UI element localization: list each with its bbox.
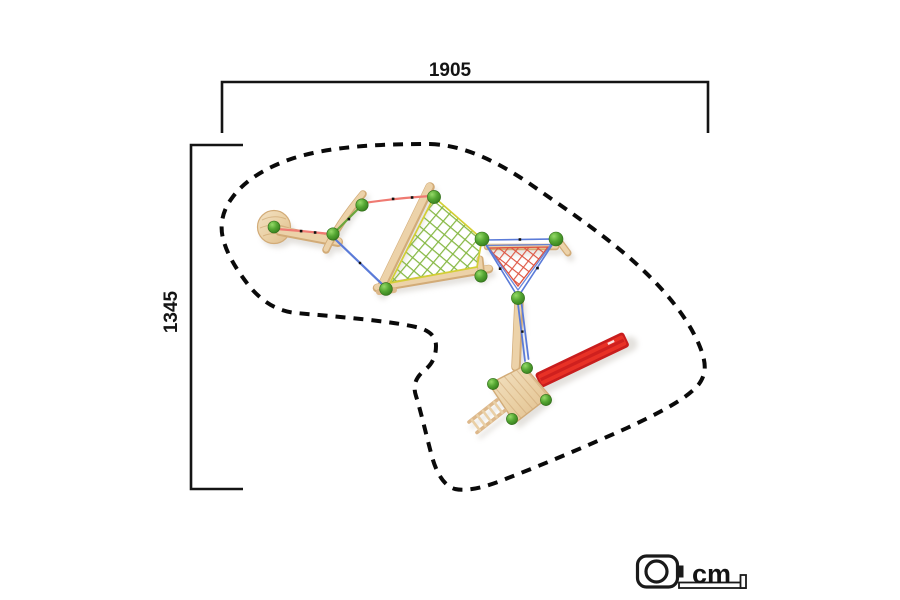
- safety-zone-outline: [222, 144, 705, 490]
- connector-ball: [356, 199, 368, 211]
- unit-legend: cm: [638, 556, 747, 589]
- connector-ball: [327, 228, 339, 240]
- connector-ball: [475, 232, 489, 246]
- unit-label: cm: [692, 559, 731, 589]
- playground-plan-canvas: 1905 1345 cm: [0, 0, 900, 600]
- dimension-height-label: 1345: [161, 290, 182, 333]
- dimension-width-line: [222, 82, 708, 133]
- connector-ball: [475, 270, 487, 282]
- slide: [535, 332, 630, 389]
- connector-ball: [268, 221, 280, 233]
- connector-ball: [521, 362, 532, 373]
- connector-ball: [540, 394, 551, 405]
- connector-ball: [487, 378, 498, 389]
- connector-ball: [511, 291, 524, 304]
- dimension-width: 1905: [222, 60, 708, 133]
- playground-plan-page: 1905 1345 cm: [0, 0, 900, 600]
- dimension-width-label: 1905: [429, 60, 472, 81]
- connector-ball: [549, 232, 563, 246]
- connector-ball: [380, 283, 393, 296]
- connector-ball: [427, 190, 440, 203]
- connector-ball: [506, 413, 517, 424]
- climbing-net-red: [489, 247, 548, 286]
